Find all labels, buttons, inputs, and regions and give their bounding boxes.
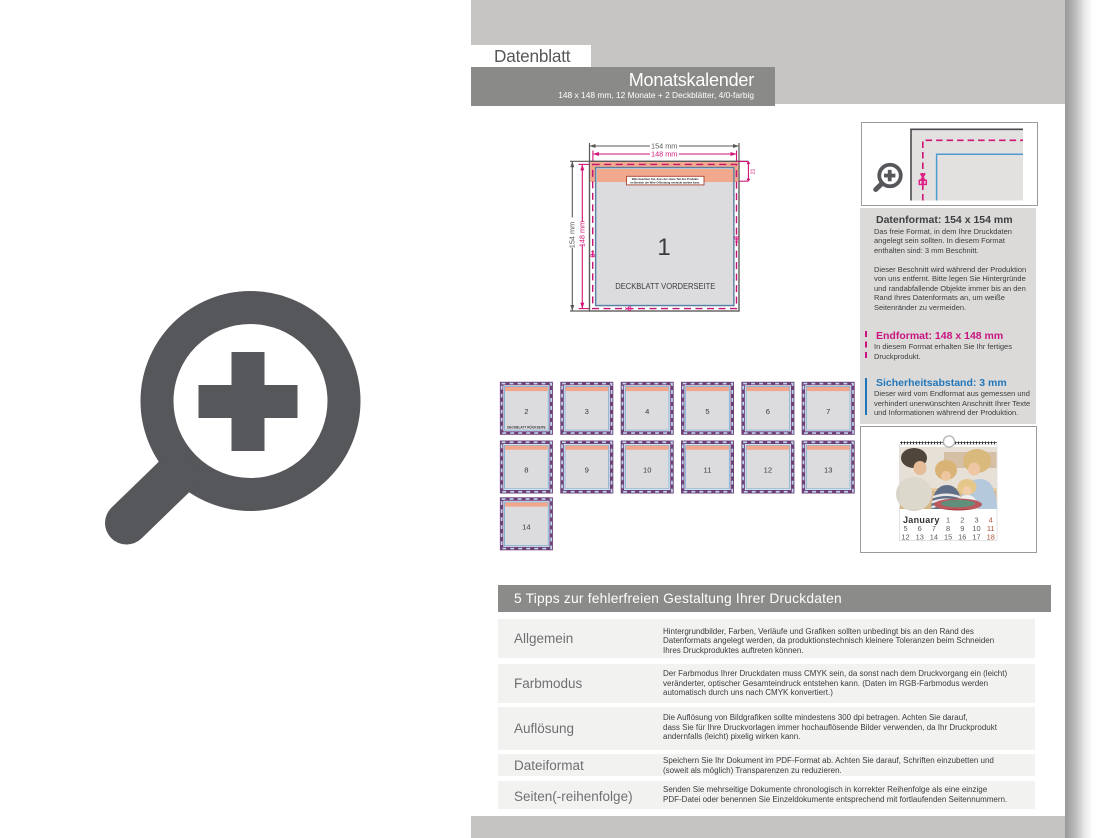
svg-text:5: 5 <box>705 407 709 416</box>
svg-text:DECKBLATT RÜCKSEITE: DECKBLATT RÜCKSEITE <box>507 424 546 429</box>
svg-text:3: 3 <box>585 407 589 416</box>
svg-text:148 mm: 148 mm <box>651 150 677 159</box>
svg-text:15: 15 <box>944 533 952 542</box>
svg-text:18: 18 <box>987 533 995 542</box>
svg-text:2: 2 <box>524 407 528 416</box>
svg-text:9: 9 <box>585 466 589 475</box>
svg-text:13: 13 <box>916 533 924 542</box>
svg-text:148 mm: 148 mm <box>577 221 586 247</box>
svg-text:14: 14 <box>930 533 938 542</box>
svg-text:154 mm: 154 mm <box>568 222 577 248</box>
svg-text:1: 1 <box>657 234 670 261</box>
svg-text:8: 8 <box>524 466 528 475</box>
svg-text:DECKBLATT VORDERSEITE: DECKBLATT VORDERSEITE <box>615 282 715 291</box>
svg-text:4: 4 <box>645 407 649 416</box>
svg-text:12: 12 <box>901 533 909 542</box>
svg-text:16: 16 <box>958 533 966 542</box>
svg-text:12: 12 <box>764 466 772 475</box>
svg-text:11: 11 <box>704 466 712 475</box>
svg-text:10: 10 <box>643 466 651 475</box>
svg-text:17: 17 <box>972 533 980 542</box>
svg-text:Bitte beachten Sie, dass der o: Bitte beachten Sie, dass der obere Teil … <box>632 177 699 181</box>
svg-text:14: 14 <box>522 523 530 532</box>
svg-text:im Bereich der Wire-O-Bindung: im Bereich der Wire-O-Bindung verdeckt w… <box>630 180 700 184</box>
svg-text:13: 13 <box>824 466 832 475</box>
svg-text:21: 21 <box>751 169 757 175</box>
svg-text:7: 7 <box>826 407 830 416</box>
svg-text:6: 6 <box>766 407 770 416</box>
